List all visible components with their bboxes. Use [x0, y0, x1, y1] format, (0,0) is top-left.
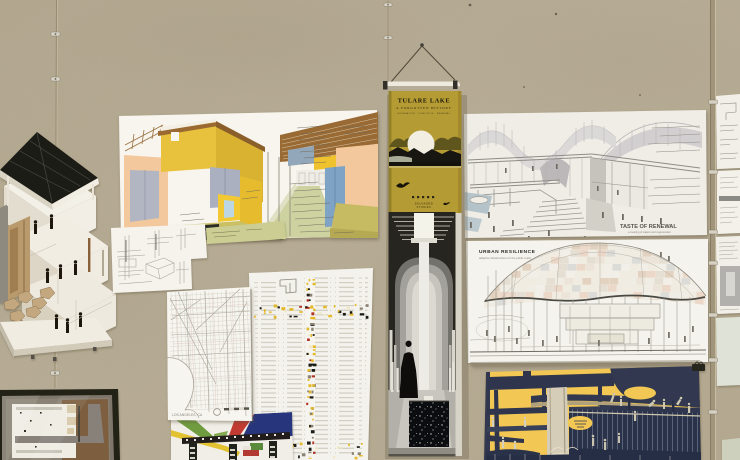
svg-text:a meeting of waters and regene: a meeting of waters and regeneration: [628, 230, 672, 234]
svg-text:STORIES: STORIES: [417, 206, 432, 209]
svg-text:URBAN RESILIENCE: URBAN RESILIENCE: [479, 249, 536, 255]
svg-text:LOS ANGELES, CA: LOS ANGELES, CA: [172, 413, 203, 417]
svg-text:TASTE OF RENEWAL: TASTE OF RENEWAL: [620, 224, 677, 230]
svg-text:TULARE LAKE: TULARE LAKE: [398, 98, 451, 105]
svg-text:A FORGOTTEN HISTORY: A FORGOTTEN HISTORY: [396, 106, 452, 110]
svg-text:EXCAVATION · COALITION · RENEW: EXCAVATION · COALITION · RENEWAL: [398, 112, 451, 115]
svg-text:SALVAGED: SALVAGED: [415, 202, 433, 206]
svg-text:adaptive infrastructure for th: adaptive infrastructure for the public r…: [479, 256, 532, 260]
